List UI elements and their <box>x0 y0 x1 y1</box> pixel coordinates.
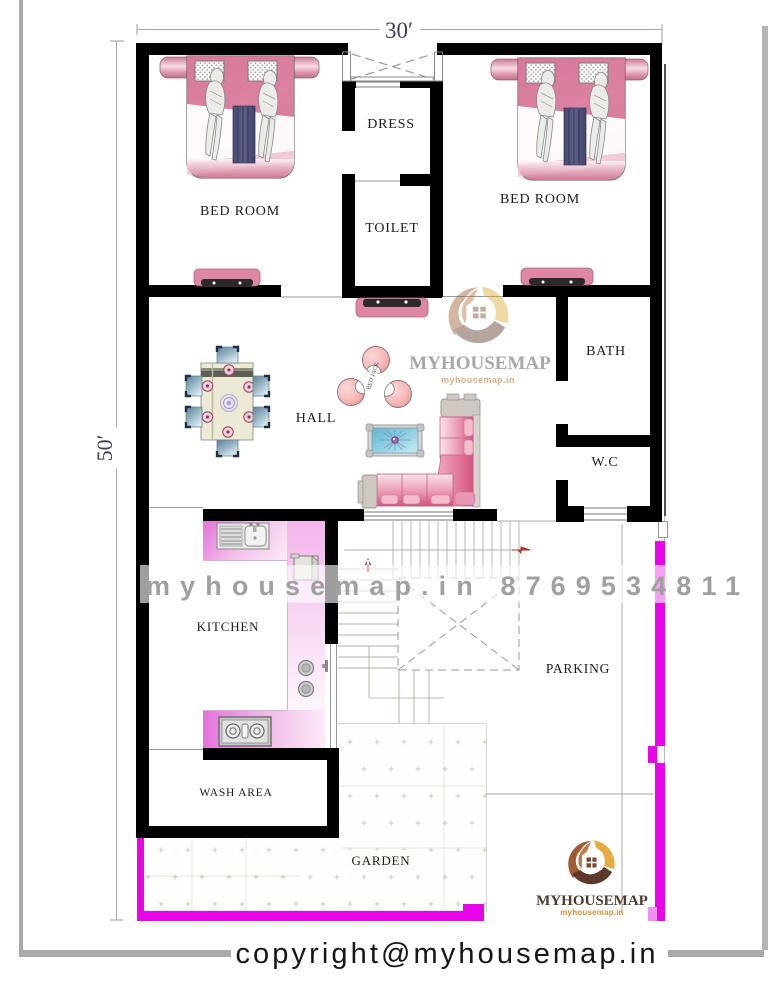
svg-text:TOILET: TOILET <box>365 221 419 236</box>
svg-text:W.C: W.C <box>591 455 618 470</box>
svg-text:copyright@myhousemap.in: copyright@myhousemap.in <box>235 938 658 970</box>
svg-text:KITCHEN: KITCHEN <box>197 619 260 634</box>
svg-text:30′: 30′ <box>385 18 413 43</box>
svg-text:BATH: BATH <box>586 344 626 359</box>
svg-text:BED ROOM: BED ROOM <box>500 192 580 207</box>
svg-text:GARDEN: GARDEN <box>352 853 411 868</box>
svg-text:myhousemap.in 8769534811: myhousemap.in 8769534811 <box>146 571 750 601</box>
svg-text:DRESS: DRESS <box>367 117 415 132</box>
svg-text:BED ROOM: BED ROOM <box>200 204 280 219</box>
svg-text:MYHOUSEMAP: MYHOUSEMAP <box>536 893 648 909</box>
svg-text:MYHOUSEMAP: MYHOUSEMAP <box>409 353 551 374</box>
svg-text:HALL: HALL <box>296 411 337 426</box>
svg-text:WASH AREA: WASH AREA <box>199 787 272 799</box>
svg-text:myhousemap.in: myhousemap.in <box>441 375 515 385</box>
svg-text:50′: 50′ <box>92 435 117 462</box>
svg-text:PARKING: PARKING <box>546 661 610 676</box>
svg-text:myhousemap.in: myhousemap.in <box>560 908 624 917</box>
